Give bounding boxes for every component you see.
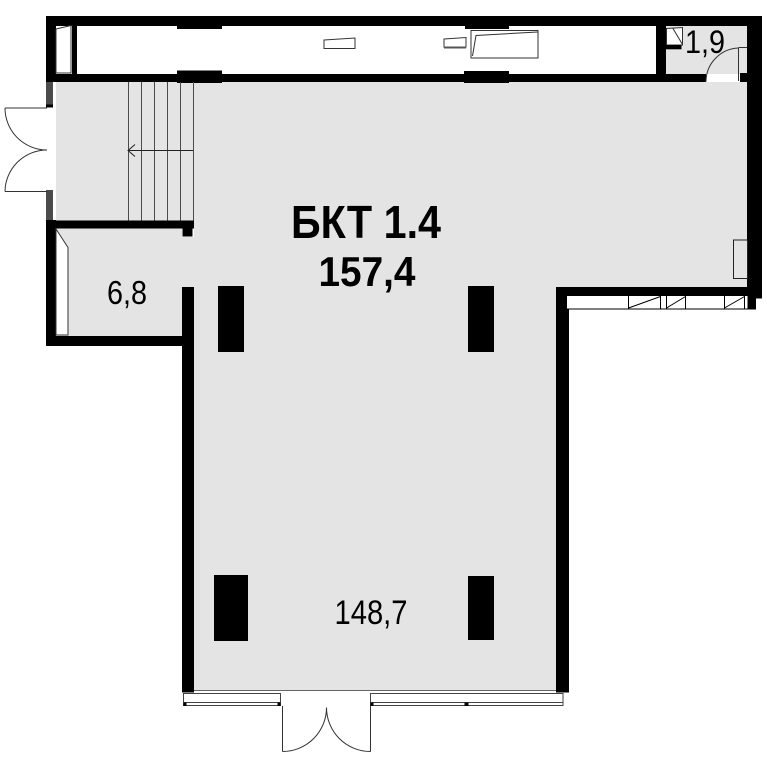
svg-text:БКТ 1.4: БКТ 1.4 [291, 196, 441, 248]
svg-text:1,9: 1,9 [685, 24, 725, 60]
svg-text:6,8: 6,8 [107, 275, 147, 312]
svg-text:157,4: 157,4 [319, 248, 417, 295]
svg-text:148,7: 148,7 [335, 594, 408, 632]
